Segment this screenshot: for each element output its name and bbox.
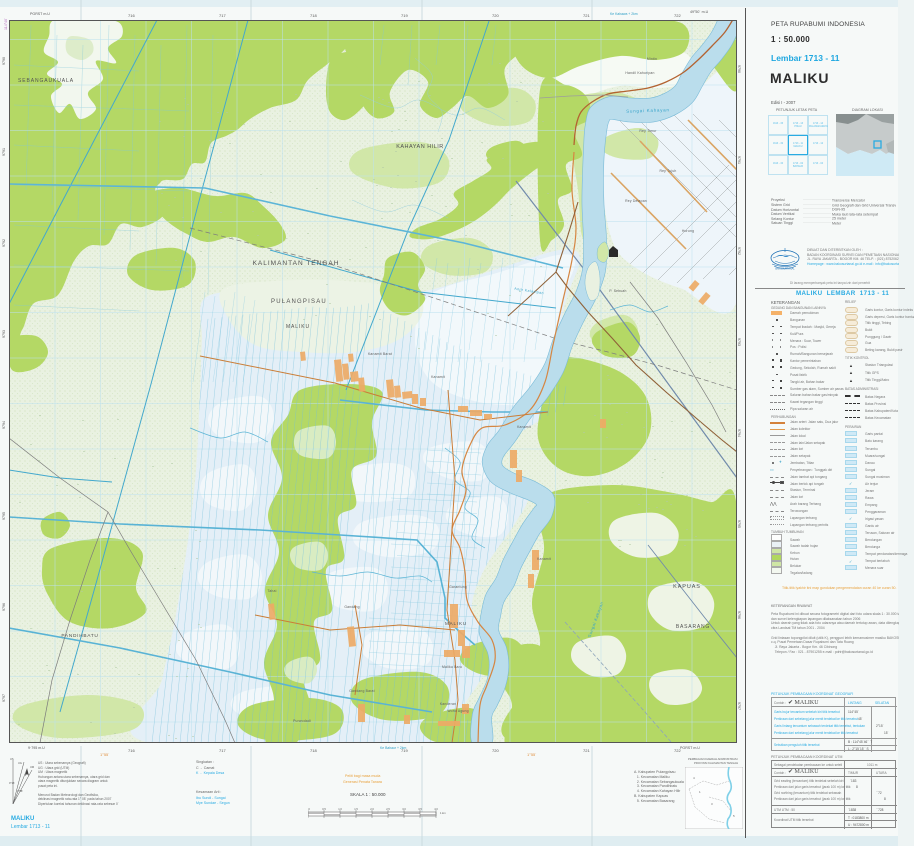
svg-text:UG: UG <box>18 761 22 765</box>
svg-text:UM: UM <box>30 765 34 769</box>
svg-text:3.0: 3.0 <box>402 808 406 811</box>
svg-text:1.0: 1.0 <box>338 808 342 811</box>
svg-text:0.0: 0.0 <box>308 808 310 811</box>
svg-text:BAKOSURTANAL: BAKOSURTANAL <box>775 268 795 271</box>
svg-text:3.5: 3.5 <box>418 808 422 811</box>
svg-text:US: US <box>10 757 14 761</box>
svg-text:1 km: 1 km <box>440 811 446 815</box>
svg-text:1.5: 1.5 <box>354 808 358 811</box>
svg-text:4.0: 4.0 <box>434 808 438 811</box>
svg-text:2.5: 2.5 <box>386 808 390 811</box>
svg-text:0°16´: 0°16´ <box>9 781 15 785</box>
svg-text:1°08´: 1°08´ <box>17 789 23 793</box>
svg-text:2.0: 2.0 <box>370 808 374 811</box>
svg-text:0.5: 0.5 <box>322 808 326 811</box>
